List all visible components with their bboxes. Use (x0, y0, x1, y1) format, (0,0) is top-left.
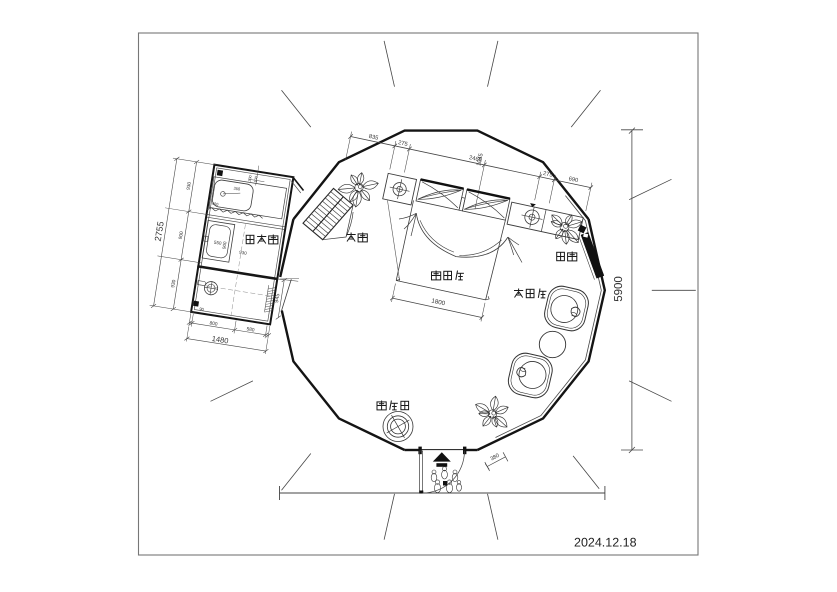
svg-text:2024.12.18: 2024.12.18 (574, 536, 637, 550)
svg-text:100: 100 (254, 176, 259, 183)
svg-text:200: 200 (248, 175, 253, 182)
svg-text:800: 800 (209, 320, 218, 327)
svg-text:350: 350 (233, 186, 241, 192)
svg-text:5900: 5900 (613, 276, 625, 302)
svg-text:400: 400 (211, 201, 219, 207)
svg-text:945: 945 (274, 293, 281, 303)
svg-text:900: 900 (221, 241, 227, 250)
svg-text:930: 930 (186, 181, 193, 190)
svg-text:930: 930 (170, 279, 177, 288)
svg-text:2755: 2755 (153, 221, 166, 242)
svg-text:580: 580 (246, 326, 255, 333)
svg-text:1800: 1800 (431, 298, 446, 308)
svg-text:930: 930 (239, 250, 248, 256)
svg-text:900: 900 (178, 231, 185, 240)
svg-text:1480: 1480 (211, 334, 229, 345)
svg-text:380: 380 (490, 453, 501, 463)
